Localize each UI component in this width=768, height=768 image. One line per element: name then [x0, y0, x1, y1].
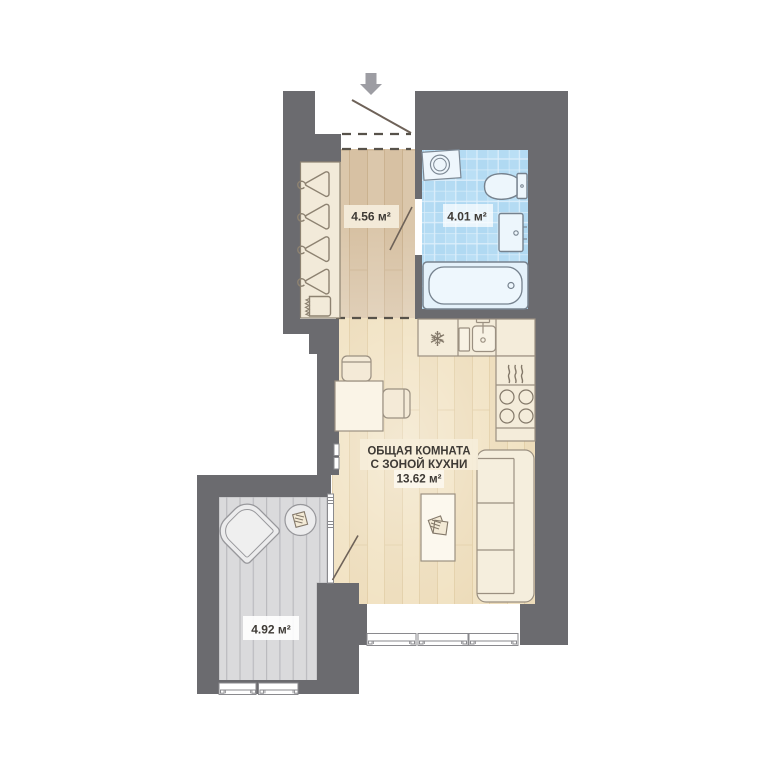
svg-text:13.62 м²: 13.62 м²	[397, 472, 442, 486]
svg-text:4.01 м²: 4.01 м²	[447, 210, 487, 224]
svg-text:ОБЩАЯ КОМНАТА: ОБЩАЯ КОМНАТА	[368, 444, 471, 458]
svg-text:4.92 м²: 4.92 м²	[251, 623, 291, 637]
svg-text:С ЗОНОЙ КУХНИ: С ЗОНОЙ КУХНИ	[371, 456, 468, 471]
svg-text:4.56 м²: 4.56 м²	[351, 210, 391, 224]
